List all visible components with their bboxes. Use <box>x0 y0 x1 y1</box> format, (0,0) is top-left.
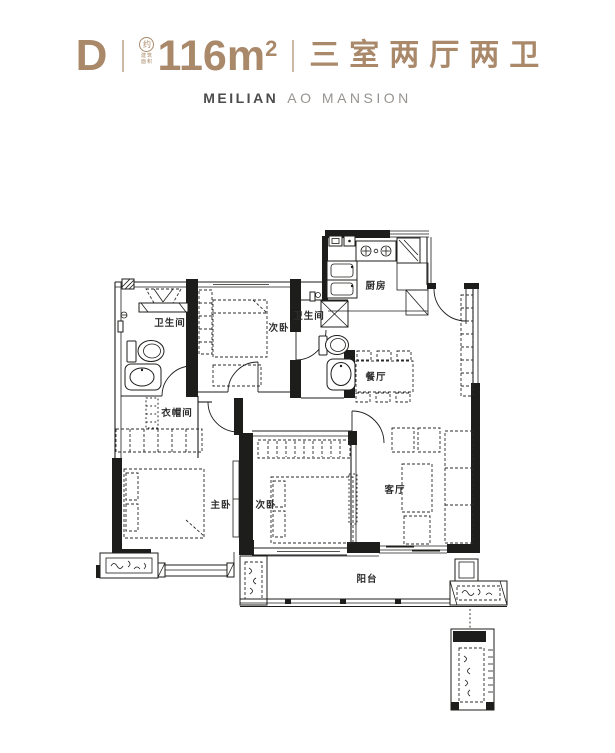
ac-platform-left <box>100 553 158 578</box>
outer-walls <box>96 230 480 578</box>
room-label-bathroom1: 卫生间 <box>154 317 186 329</box>
room-label-dining: 餐厅 <box>364 371 386 383</box>
bathroom1-fixtures <box>118 289 188 390</box>
room-label-kitchen: 厨房 <box>365 280 386 292</box>
room-label-master: 主卧 <box>210 499 231 511</box>
entry-cabinet <box>461 295 473 396</box>
ac-platform-detached <box>451 609 494 710</box>
bedroom1-furniture <box>199 290 267 386</box>
bedroom2-furniture <box>258 440 357 543</box>
cloakroom-furniture <box>116 398 202 452</box>
room-label-bedroom2: 次卧 <box>255 499 276 511</box>
room-label-living: 客厅 <box>383 484 405 496</box>
room-label-bathroom2: 卫生间 <box>293 310 325 322</box>
bathroom2-fixtures <box>310 292 355 390</box>
floorplan-drawing: 卫生间 次卧 卫生间 厨房 餐厅 衣帽间 主卧 次卧 客厅 阳台 <box>0 0 615 753</box>
floorplan-page: D 约 建筑面积 116m2 三室两厅两卫 MEILIANAO MANSION <box>0 0 615 753</box>
room-label-cloakroom: 衣帽间 <box>161 407 193 419</box>
room-label-balcony: 阳台 <box>356 573 377 585</box>
room-label-bedroom1: 次卧 <box>268 322 289 334</box>
